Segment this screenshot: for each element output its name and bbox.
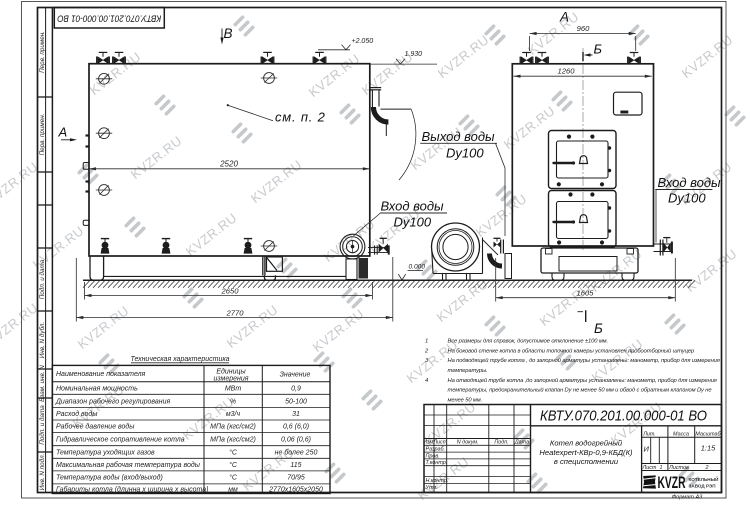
svg-text:°С: °С — [229, 461, 238, 469]
svg-text:Взам. инв. N: Взам. инв. N — [39, 365, 46, 402]
svg-text:KVZR: KVZR — [658, 474, 686, 492]
svg-text:1260: 1260 — [558, 67, 576, 76]
svg-text:0,06 (0,6): 0,06 (0,6) — [281, 437, 311, 444]
svg-text:Единицы: Единицы — [216, 368, 246, 376]
svg-text:На боковой стенке котла в обла: На боковой стенке котла в области топочн… — [448, 347, 695, 354]
svg-text:Лист: Лист — [432, 440, 447, 446]
svg-text:KVZR.RU: KVZR.RU — [683, 246, 740, 295]
svg-text:МПа (кгс/см2): МПа (кгс/см2) — [210, 424, 256, 431]
svg-text:Перв. примен.: Перв. примен. — [39, 114, 46, 156]
svg-text:1:15: 1:15 — [701, 444, 716, 453]
svg-text:%: % — [230, 398, 236, 405]
svg-text:Температура уходящих газов: Температура уходящих газов — [56, 448, 155, 456]
svg-text:2: 2 — [705, 465, 709, 471]
svg-text:Масштаб: Масштаб — [695, 431, 721, 437]
svg-text:Heatexpert-КВр-0,9-КБД(К): Heatexpert-КВр-0,9-КБД(К) — [539, 448, 633, 457]
svg-text:см. п. 2: см. п. 2 — [275, 110, 326, 125]
svg-text:KVZR.RU: KVZR.RU — [0, 159, 41, 208]
svg-text:КОТЕЛЬНЫЙ: КОТЕЛЬНЫЙ — [689, 475, 719, 482]
svg-text:KVZR.RU: KVZR.RU — [183, 210, 240, 259]
svg-text:Вход воды: Вход воды — [381, 199, 445, 214]
svg-text:2650: 2650 — [221, 287, 240, 296]
svg-text:Все размеры для справок, допус: Все размеры для справок, допустимое откл… — [448, 339, 609, 345]
svg-text:А: А — [58, 125, 68, 140]
svg-text:температуры.: температуры. — [448, 368, 488, 374]
svg-text:4: 4 — [425, 378, 428, 384]
svg-text:м3/ч: м3/ч — [226, 411, 241, 418]
svg-text:0,6 (6,0): 0,6 (6,0) — [283, 424, 309, 431]
svg-text:Габариты котла (длинна х ширин: Габариты котла (длинна х ширина х высота… — [56, 486, 209, 494]
svg-text:31: 31 — [292, 411, 300, 418]
svg-text:KVZR.RU: KVZR.RU — [588, 246, 645, 295]
svg-text:В: В — [224, 26, 233, 41]
svg-text:ЗАВОД РЭП: ЗАВОД РЭП — [689, 484, 716, 489]
svg-text:не более 250: не более 250 — [275, 448, 318, 456]
svg-text:Номинальная мощность: Номинальная мощность — [56, 386, 138, 393]
svg-text:Dy100: Dy100 — [668, 190, 706, 205]
svg-text:Расход воды: Расход воды — [56, 410, 98, 418]
svg-text:KVZR.RU: KVZR.RU — [128, 133, 185, 182]
svg-text:Формат А3: Формат А3 — [672, 494, 703, 500]
svg-text:На отводящей трубе котла ,до з: На отводящей трубе котла ,до запорной ар… — [448, 377, 717, 384]
svg-text:Диапазон рабочего регулировани: Диапазон рабочего регулирования — [55, 397, 171, 405]
svg-text:Температура воды (вход/выход): Температура воды (вход/выход) — [56, 474, 163, 482]
svg-text:Лит.: Лит. — [642, 431, 656, 437]
svg-text:°С: °С — [229, 474, 238, 482]
svg-text:Дата: Дата — [514, 440, 529, 446]
svg-text:измерения: измерения — [213, 376, 248, 383]
svg-text:N докум.: N докум. — [457, 440, 479, 446]
svg-text:мм: мм — [228, 487, 238, 494]
svg-text:Dy100: Dy100 — [446, 146, 484, 161]
svg-text:Б: Б — [594, 42, 603, 57]
svg-text:МВт: МВт — [225, 386, 242, 393]
svg-text:Значение: Значение — [280, 372, 311, 379]
svg-text:Подп. и дата: Подп. и дата — [38, 259, 46, 299]
svg-text:960: 960 — [577, 24, 590, 33]
svg-text:Инв. N дубл.: Инв. N дубл. — [38, 322, 46, 358]
svg-text:На подводящей трубе котла ,: На подводящей трубе котла , до запорной … — [448, 357, 720, 364]
svg-text:Перв. примен.: Перв. примен. — [39, 31, 46, 73]
svg-text:70/95: 70/95 — [287, 475, 305, 482]
svg-text:0,9: 0,9 — [291, 386, 301, 393]
svg-text:Пров.: Пров. — [426, 453, 440, 459]
svg-text:И: И — [644, 445, 650, 454]
svg-text:Масса: Масса — [673, 431, 689, 437]
svg-text:1: 1 — [660, 465, 663, 471]
svg-text:KVZR.RU: KVZR.RU — [75, 303, 132, 352]
svg-text:Вход воды: Вход воды — [658, 175, 722, 190]
svg-text:Лист: Лист — [642, 465, 657, 471]
svg-text:Гидравлическое сопративление к: Гидравлическое сопративление котла — [56, 436, 185, 444]
svg-text:Разраб.: Разраб. — [426, 447, 446, 453]
svg-text:КВТУ.070.201.00.000-01 ВО: КВТУ.070.201.00.000-01 ВО — [540, 408, 707, 425]
svg-text:0.000: 0.000 — [409, 263, 426, 270]
svg-text:КВТУ.070.201.00.000-01 ВО: КВТУ.070.201.00.000-01 ВО — [57, 13, 161, 23]
svg-text:50-100: 50-100 — [285, 398, 307, 405]
svg-text:Подп. и дата: Подп. и дата — [38, 405, 46, 445]
svg-text:Выход воды: Выход воды — [422, 129, 496, 144]
svg-text:Dy100: Dy100 — [394, 215, 432, 230]
svg-text:1605: 1605 — [577, 289, 595, 298]
svg-text:°С: °С — [229, 448, 238, 456]
svg-text:KVZR.RU: KVZR.RU — [87, 49, 144, 98]
svg-text:в специсполнении: в специсполнении — [554, 457, 619, 466]
svg-text:1.930: 1.930 — [405, 51, 423, 58]
svg-text:115: 115 — [290, 462, 301, 469]
svg-text:Б: Б — [594, 321, 603, 336]
svg-text:Рабочее давление воды: Рабочее давление воды — [56, 423, 135, 431]
svg-text:2520: 2520 — [219, 160, 238, 169]
svg-text:KVZR.RU: KVZR.RU — [310, 306, 367, 355]
svg-text:2770: 2770 — [226, 309, 245, 318]
svg-text:Подп.: Подп. — [494, 440, 508, 446]
svg-text:Инв. N подл.: Инв. N подл. — [38, 454, 46, 491]
svg-text:2770х1605х2050: 2770х1605х2050 — [268, 487, 323, 494]
svg-text:1: 1 — [425, 339, 428, 345]
svg-text:Утв.: Утв. — [425, 485, 438, 491]
svg-text:Техническая характеристика: Техническая характеристика — [130, 356, 229, 363]
svg-text:Т.контр.: Т.контр. — [426, 460, 448, 466]
svg-text:Наименование показателя: Наименование показателя — [56, 371, 146, 378]
svg-text:температуры, предохранительный: температуры, предохранительный клапан Dу… — [448, 387, 713, 394]
svg-text:Котел водогрейный: Котел водогрейный — [550, 439, 623, 448]
svg-text:МПа (кгс/см2): МПа (кгс/см2) — [210, 437, 256, 444]
svg-text:Н.контр.: Н.контр. — [426, 478, 449, 484]
svg-text:менее 50 мм.: менее 50 мм. — [448, 397, 483, 403]
svg-text:KVZR.RU: KVZR.RU — [248, 157, 305, 206]
svg-text:Максимальная рабочая температу: Максимальная рабочая температура воды — [56, 461, 201, 469]
svg-text:KVZR.RU: KVZR.RU — [0, 300, 41, 349]
svg-text:KVZR.RU: KVZR.RU — [435, 32, 492, 81]
svg-text:2: 2 — [424, 348, 429, 354]
svg-text:+2.050: +2.050 — [352, 38, 374, 45]
svg-text:А: А — [559, 10, 569, 25]
svg-text:KVZR.RU: KVZR.RU — [679, 32, 736, 81]
svg-text:Листов: Листов — [668, 465, 689, 471]
